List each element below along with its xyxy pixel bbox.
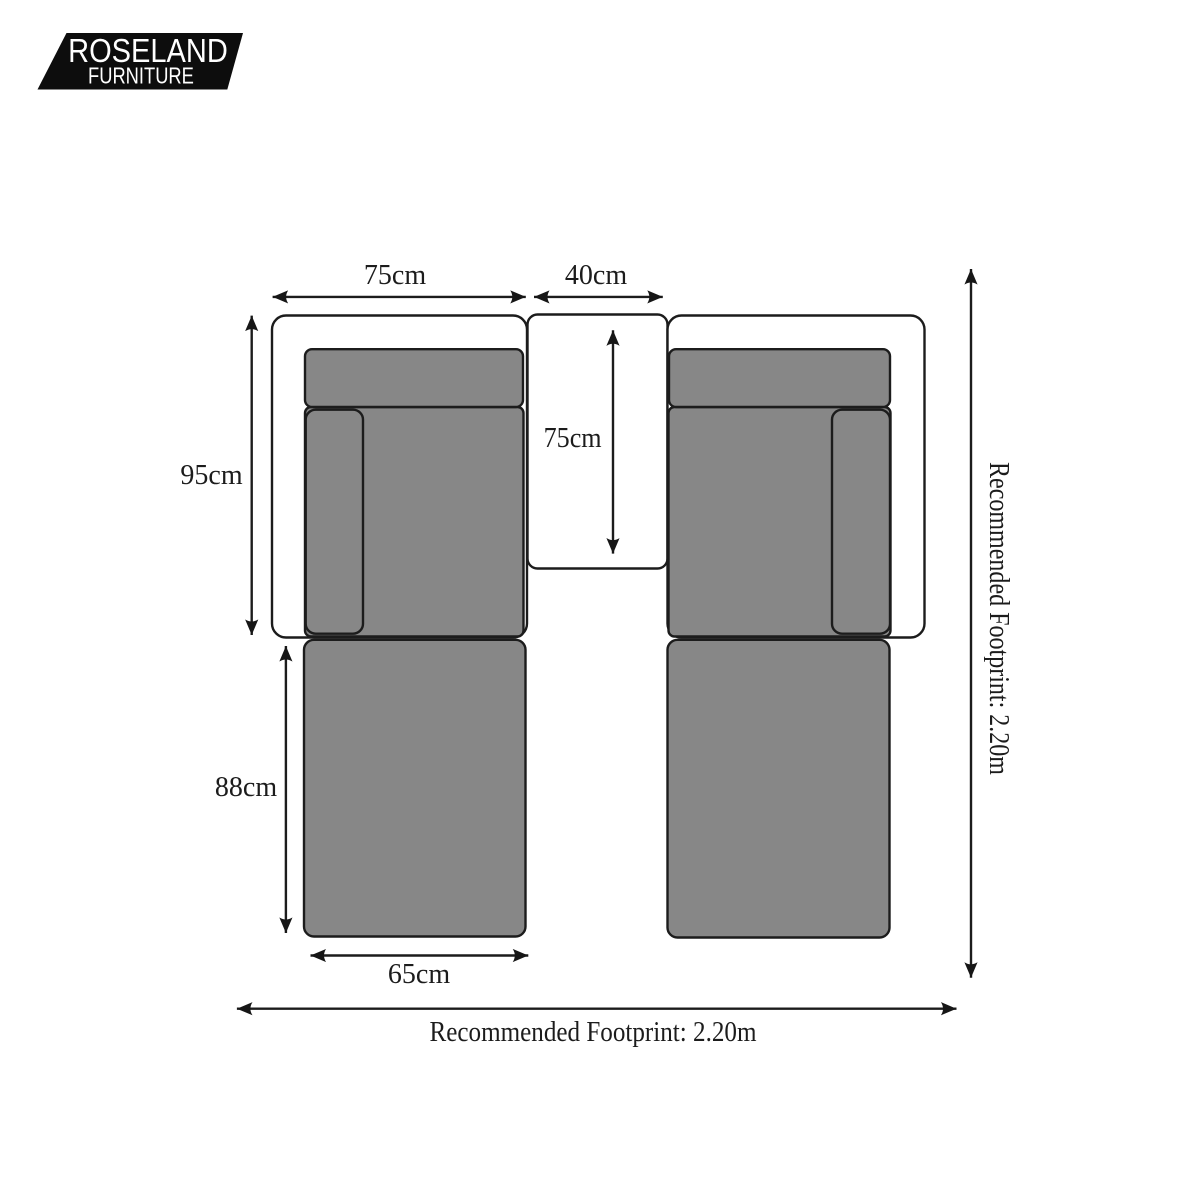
- svg-text:FURNITURE: FURNITURE: [88, 63, 194, 88]
- svg-text:88cm: 88cm: [215, 772, 277, 803]
- svg-text:Recommended Footprint: 2.20m: Recommended Footprint: 2.20m: [983, 462, 1014, 775]
- svg-text:75cm: 75cm: [364, 260, 426, 291]
- svg-text:65cm: 65cm: [388, 959, 450, 990]
- svg-text:75cm: 75cm: [544, 423, 602, 454]
- svg-text:Recommended Footprint: 2.20m: Recommended Footprint: 2.20m: [430, 1017, 757, 1048]
- svg-text:40cm: 40cm: [565, 260, 627, 291]
- svg-text:95cm: 95cm: [180, 460, 242, 491]
